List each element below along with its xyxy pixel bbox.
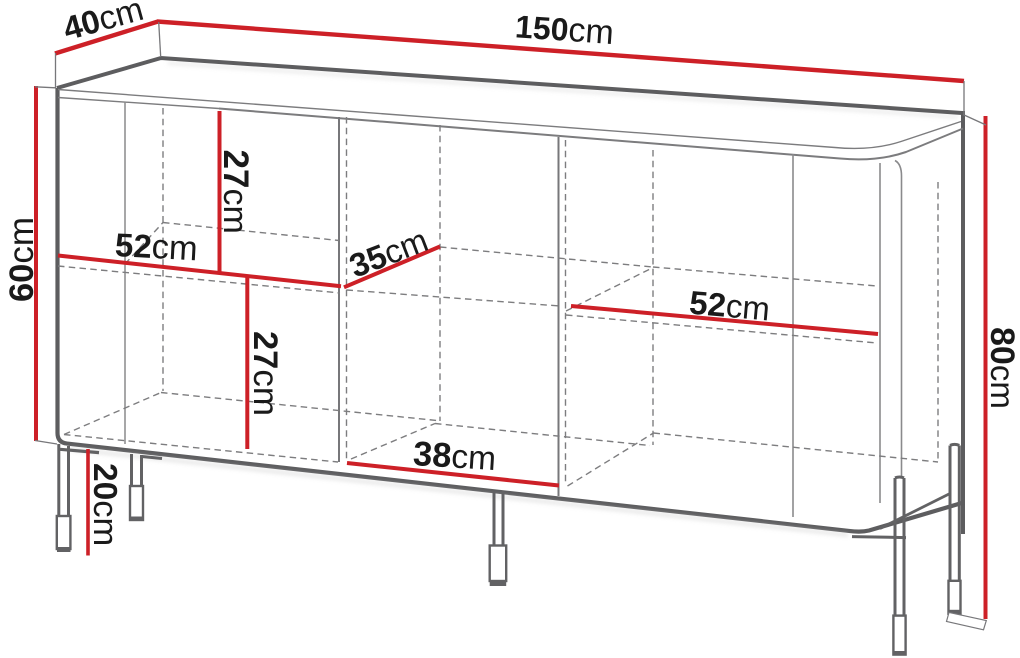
svg-text:52cm: 52cm	[688, 284, 772, 328]
svg-text:60cm: 60cm	[2, 217, 41, 302]
svg-text:27cm: 27cm	[216, 150, 255, 234]
svg-text:38cm: 38cm	[412, 435, 497, 478]
svg-text:20cm: 20cm	[86, 463, 124, 546]
svg-text:80cm: 80cm	[983, 327, 1020, 409]
svg-text:52cm: 52cm	[114, 226, 199, 268]
svg-text:27cm: 27cm	[246, 331, 285, 416]
